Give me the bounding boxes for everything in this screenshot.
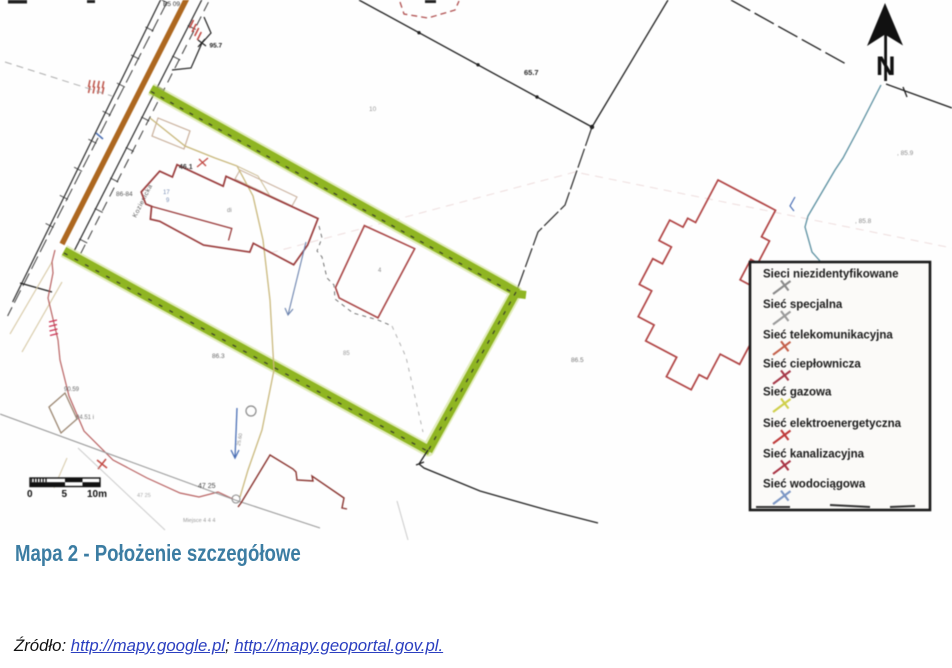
svg-text:Miejsce 4 4 4: Miejsce 4 4 4: [183, 518, 215, 524]
svg-text:Sieć kanalizacyjna: Sieć kanalizacyjna: [763, 448, 865, 460]
svg-text:Sieć telekomunikacyjna: Sieć telekomunikacyjna: [763, 329, 893, 341]
svg-text:86.3: 86.3: [212, 353, 225, 360]
svg-text:86-84: 86-84: [116, 191, 133, 198]
svg-text:B5 09: B5 09: [163, 1, 180, 8]
svg-text:10: 10: [369, 106, 377, 113]
svg-text:17: 17: [163, 190, 170, 196]
svg-text:di: di: [227, 208, 232, 214]
svg-text:Sieć specjalna: Sieć specjalna: [763, 299, 843, 311]
svg-text:, 85.9: , 85.9: [897, 150, 914, 157]
svg-text:, 85.8: , 85.8: [855, 218, 872, 225]
svg-text:94.51 i: 94.51 i: [76, 415, 94, 421]
svg-text:46.1: 46.1: [179, 164, 193, 171]
svg-text:90.59: 90.59: [64, 387, 80, 393]
svg-text:65.7: 65.7: [524, 68, 539, 77]
svg-text:10m: 10m: [87, 489, 107, 500]
svg-text:85: 85: [343, 351, 350, 357]
svg-text:Sieć ciepłownicza: Sieć ciepłownicza: [763, 358, 861, 370]
svg-text:Sieci niezidentyfikowane: Sieci niezidentyfikowane: [763, 269, 898, 281]
svg-text:0: 0: [27, 489, 33, 500]
svg-text:N: N: [876, 51, 896, 81]
svg-text:Sieć wodociągowa: Sieć wodociągowa: [763, 479, 866, 491]
svg-text:Sieć gazowa: Sieć gazowa: [763, 387, 832, 399]
svg-text:47 25: 47 25: [198, 483, 216, 490]
svg-text:5: 5: [62, 489, 68, 500]
svg-text:95.7: 95.7: [210, 43, 223, 50]
svg-text:Sieć elektroenergetyczna: Sieć elektroenergetyczna: [763, 418, 902, 430]
svg-text:86.5: 86.5: [571, 357, 584, 364]
svg-text:47 25: 47 25: [137, 493, 151, 499]
